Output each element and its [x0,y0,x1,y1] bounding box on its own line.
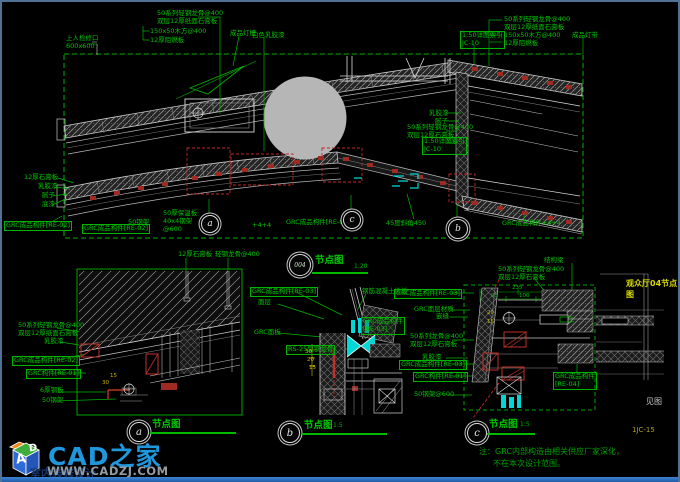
ref-text: 见图 [646,396,662,407]
cube-letter-d: D [28,442,38,454]
bottom-border-bar [2,477,678,482]
cadzj-watermark: A D 室内装修设计 CAD之家 WWW.CADZJ.COM [2,436,262,480]
cad-linework [2,2,680,482]
cube-letter-a: A [15,451,27,467]
sheet-title-tag: 观众厅04节点图 [626,278,678,300]
design-note-line2: 不在本次设计范围。 [479,458,624,470]
sheet-number: 1JC-15 [632,426,655,434]
design-note-line1: 注：GRC内部构造由相关供应厂家深化， [479,447,624,456]
design-note: 注：GRC内部构造由相关供应厂家深化， 不在本次设计范围。 [479,446,624,469]
cad-viewport: 50系列轻钢龙骨@400 双层12厚纸面石膏板150x50木方@40012厚阻燃… [0,0,680,482]
brand-url: WWW.CADZJ.COM [47,464,169,478]
